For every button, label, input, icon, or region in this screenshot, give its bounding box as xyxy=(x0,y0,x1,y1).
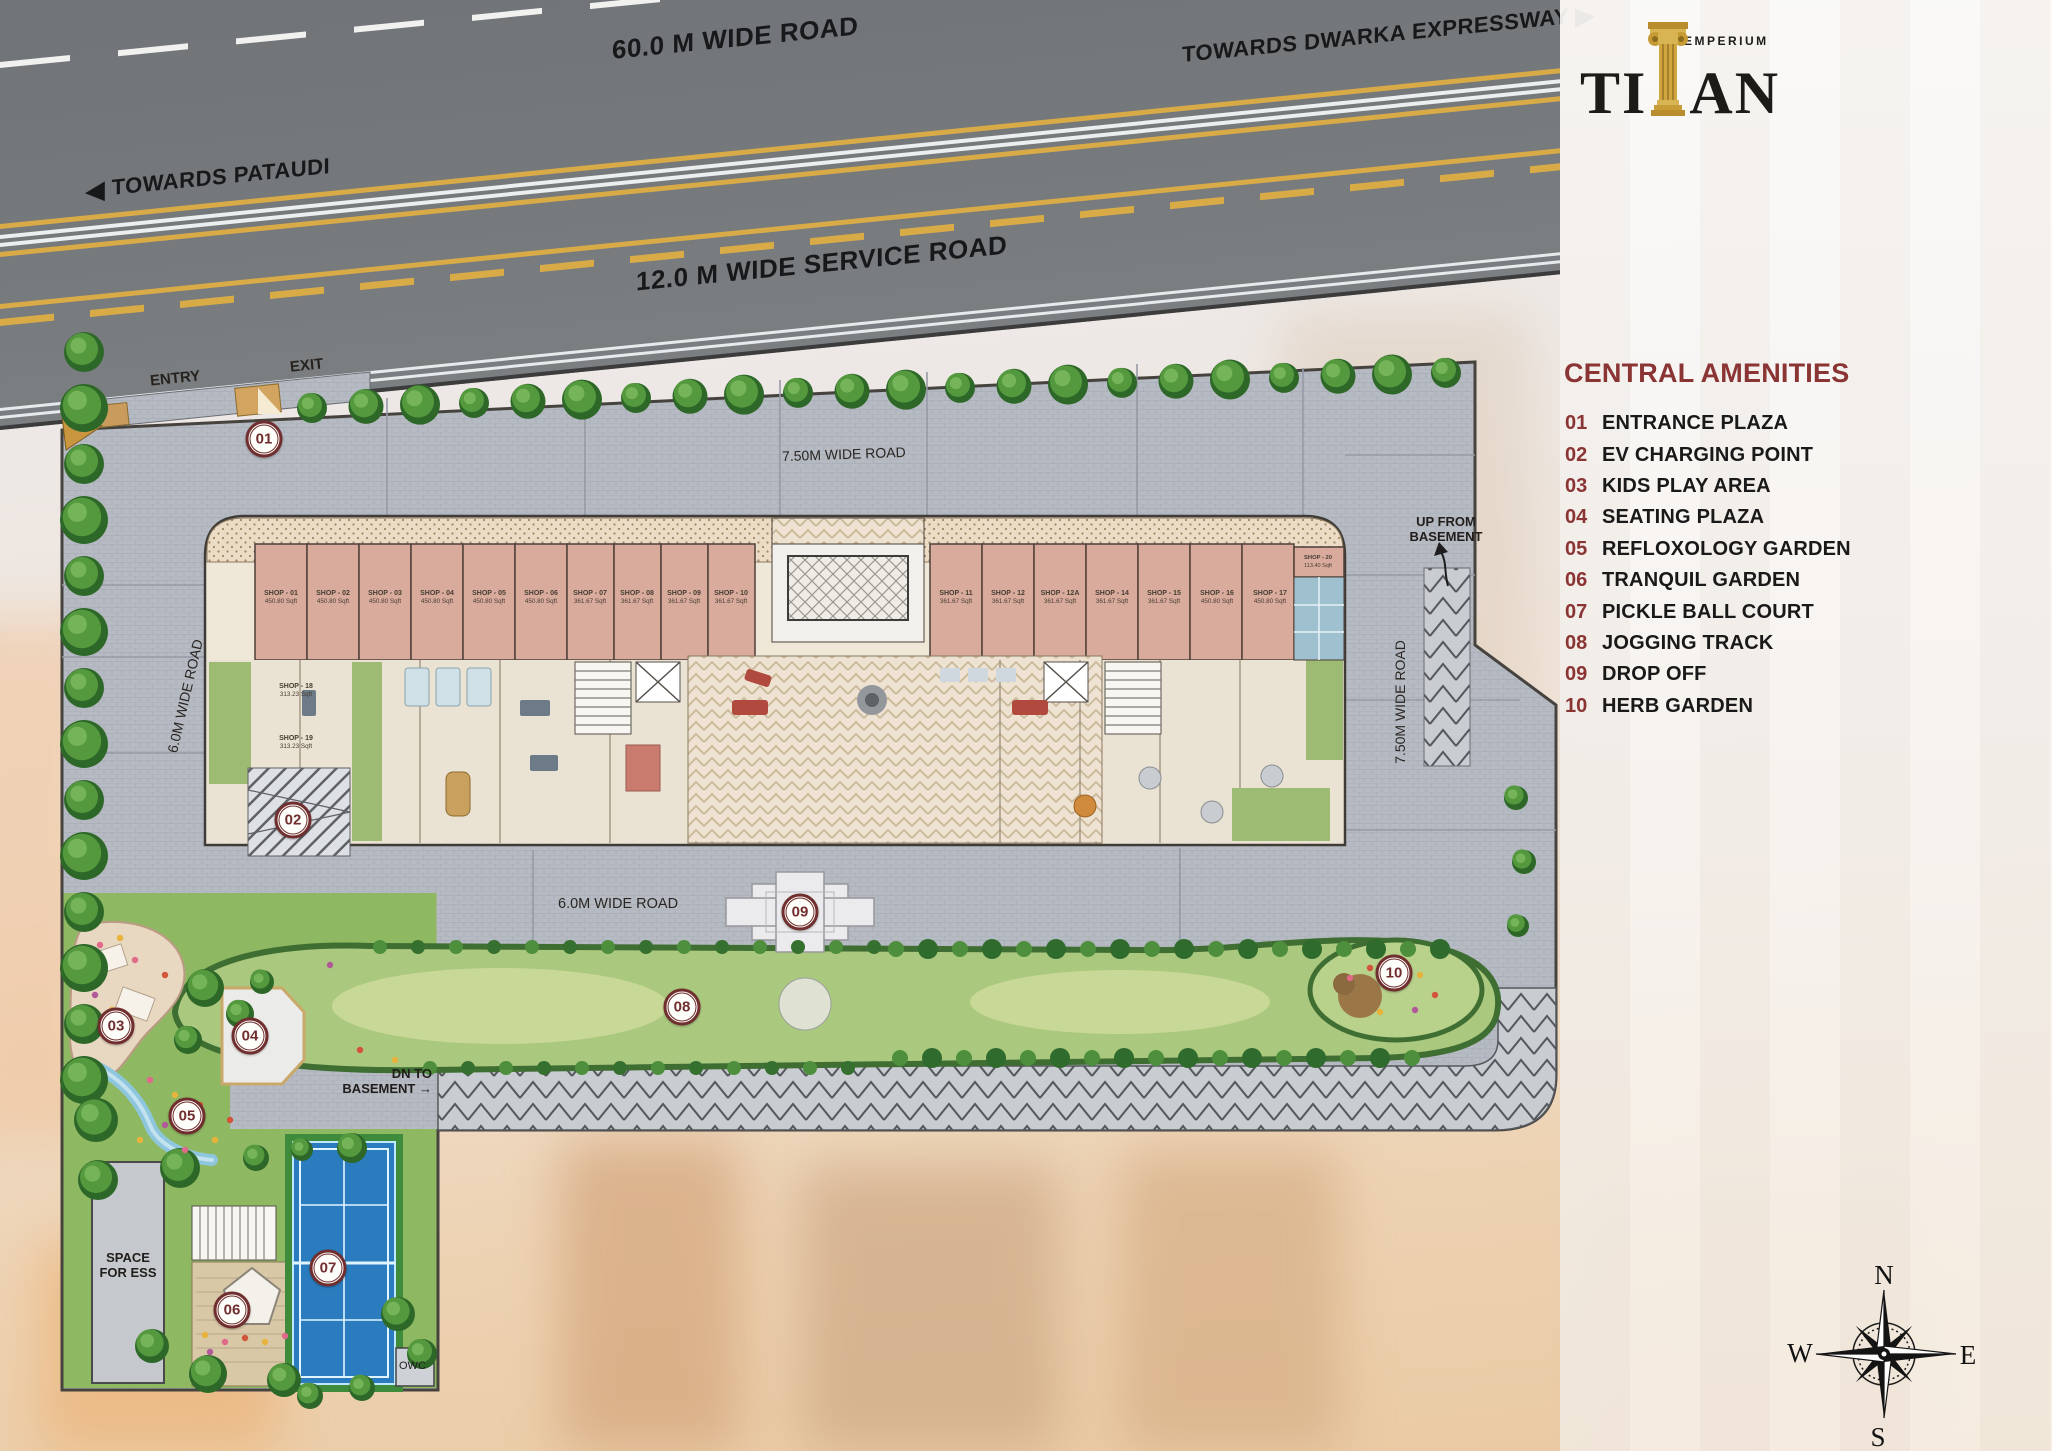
amenity-number: 09 xyxy=(1565,663,1602,686)
brand-name-right: AN xyxy=(1689,69,1780,118)
plan-marker-08: 08 xyxy=(664,989,701,1026)
site-plan-page: { "brand": {"name": "TITAN", "name_left"… xyxy=(0,0,2052,1451)
atrium-skylight xyxy=(788,556,908,620)
amenity-row: 08JOGGING TRACK xyxy=(1565,628,1851,659)
brand-name-left: TI xyxy=(1580,69,1647,118)
amenity-label: PICKLE BALL COURT xyxy=(1602,601,1814,624)
entrance-lobby xyxy=(688,656,1102,843)
amenity-number: 06 xyxy=(1565,569,1602,592)
plan-marker-02: 02 xyxy=(275,802,312,839)
brand-logo: EMPERIUM TI AN xyxy=(1580,6,1780,116)
amenity-number: 08 xyxy=(1565,632,1602,655)
amenity-number: 05 xyxy=(1565,538,1602,561)
plan-marker-03: 03 xyxy=(98,1008,135,1045)
shop-label: SHOP - 10361.67 Sqft xyxy=(704,590,758,606)
amenity-number: 07 xyxy=(1565,601,1602,624)
amenity-row: 04SEATING PLAZA xyxy=(1565,502,1851,533)
amenity-label: HERB GARDEN xyxy=(1602,695,1753,718)
compass-e: E xyxy=(1960,1340,1977,1370)
amenity-row: 09DROP OFF xyxy=(1565,659,1851,690)
shop-label: SHOP - 06450.80 Sqft xyxy=(514,590,568,606)
amenity-number: 10 xyxy=(1565,695,1602,718)
shop-label: SHOP - 20113.40 Sqft xyxy=(1295,554,1341,570)
up-ramp xyxy=(1424,568,1470,766)
amenity-row: 05REFLOXOLOGY GARDEN xyxy=(1565,534,1851,565)
amenity-row: 01ENTRANCE PLAZA xyxy=(1565,408,1851,439)
amenity-label: DROP OFF xyxy=(1602,663,1707,686)
amenity-row: 07PICKLE BALL COURT xyxy=(1565,596,1851,627)
amenity-number: 03 xyxy=(1565,475,1602,498)
ess-label: SPACEFOR ESS xyxy=(92,1250,164,1280)
shop-label: SHOP - 01450.80 Sqft xyxy=(254,590,308,606)
amenity-row: 03KIDS PLAY AREA xyxy=(1565,471,1851,502)
amenity-label: SEATING PLAZA xyxy=(1602,506,1764,529)
plan-marker-04: 04 xyxy=(232,1018,269,1055)
dn-basement-label: DN TO BASEMENT → xyxy=(322,1066,432,1096)
shop-label: SHOP - 05450.80 Sqft xyxy=(462,590,516,606)
shop-label: SHOP - 08361.67 Sqft xyxy=(610,590,664,606)
amenity-row: 02EV CHARGING POINT xyxy=(1565,439,1851,470)
amenity-number: 01 xyxy=(1565,412,1602,435)
plan-marker-09: 09 xyxy=(782,894,819,931)
amenity-row: 10HERB GARDEN xyxy=(1565,691,1851,722)
internal-road-bottom-label: 6.0M WIDE ROAD xyxy=(558,896,678,912)
amenity-label: JOGGING TRACK xyxy=(1602,632,1774,655)
up-basement-label: UP FROMBASEMENT xyxy=(1408,514,1484,544)
owc-label: OWC xyxy=(399,1360,426,1372)
amenity-label: ENTRANCE PLAZA xyxy=(1602,412,1788,435)
shop-label: SHOP - 12361.67 Sqft xyxy=(981,590,1035,606)
compass-n: N xyxy=(1874,1260,1894,1290)
compass-rose: N S W E xyxy=(1786,1256,1986,1451)
amenity-label: EV CHARGING POINT xyxy=(1602,444,1813,467)
amenity-row: 06TRANQUIL GARDEN xyxy=(1565,565,1851,596)
shop-label: SHOP - 14361.67 Sqft xyxy=(1085,590,1139,606)
plan-marker-10: 10 xyxy=(1376,955,1413,992)
shop-label: SHOP - 11361.67 Sqft xyxy=(929,590,983,606)
shop-label: SHOP - 07361.67 Sqft xyxy=(563,590,617,606)
amenities-heading: CENTRAL AMENITIES xyxy=(1564,358,1849,389)
legend-panel: EMPERIUM TI AN CENTRAL AMENITIES 01ENTRA… xyxy=(1560,0,2052,1451)
stairs-block xyxy=(192,1206,276,1260)
amenity-label: REFLOXOLOGY GARDEN xyxy=(1602,538,1851,561)
plan-marker-07: 07 xyxy=(310,1250,347,1287)
shop-label: SHOP - 03450.80 Sqft xyxy=(358,590,412,606)
shop-label: SHOP - 18313.23 Sqft xyxy=(269,683,323,699)
shop-label: SHOP - 09361.67 Sqft xyxy=(657,590,711,606)
dn-arrow-icon: → xyxy=(419,1081,432,1096)
plan-marker-01: 01 xyxy=(246,421,283,458)
shop-label: SHOP - 02450.80 Sqft xyxy=(306,590,360,606)
shop-label: SHOP - 17450.80 Sqft xyxy=(1243,590,1297,606)
amenity-label: KIDS PLAY AREA xyxy=(1602,475,1771,498)
compass-w: W xyxy=(1787,1338,1813,1368)
shop-label: SHOP - 15361.67 Sqft xyxy=(1137,590,1191,606)
shop-label: SHOP - 16450.80 Sqft xyxy=(1190,590,1244,606)
plan-marker-05: 05 xyxy=(169,1098,206,1135)
compass-s: S xyxy=(1870,1422,1885,1451)
column-icon xyxy=(1646,20,1690,118)
shop-label: SHOP - 12A361.67 Sqft xyxy=(1033,590,1087,606)
amenity-label: TRANQUIL GARDEN xyxy=(1602,569,1800,592)
panel-texture xyxy=(1560,0,2052,1451)
shop-label: SHOP - 04450.80 Sqft xyxy=(410,590,464,606)
internal-road-right-label: 7.50M WIDE ROAD xyxy=(1392,632,1408,772)
amenities-list: 01ENTRANCE PLAZA02EV CHARGING POINT03KID… xyxy=(1565,408,1851,722)
amenity-number: 02 xyxy=(1565,444,1602,467)
shop-label: SHOP - 19313.23 Sqft xyxy=(269,735,323,751)
plan-marker-06: 06 xyxy=(214,1292,251,1329)
amenity-number: 04 xyxy=(1565,506,1602,529)
exit-label: EXIT xyxy=(289,355,324,375)
